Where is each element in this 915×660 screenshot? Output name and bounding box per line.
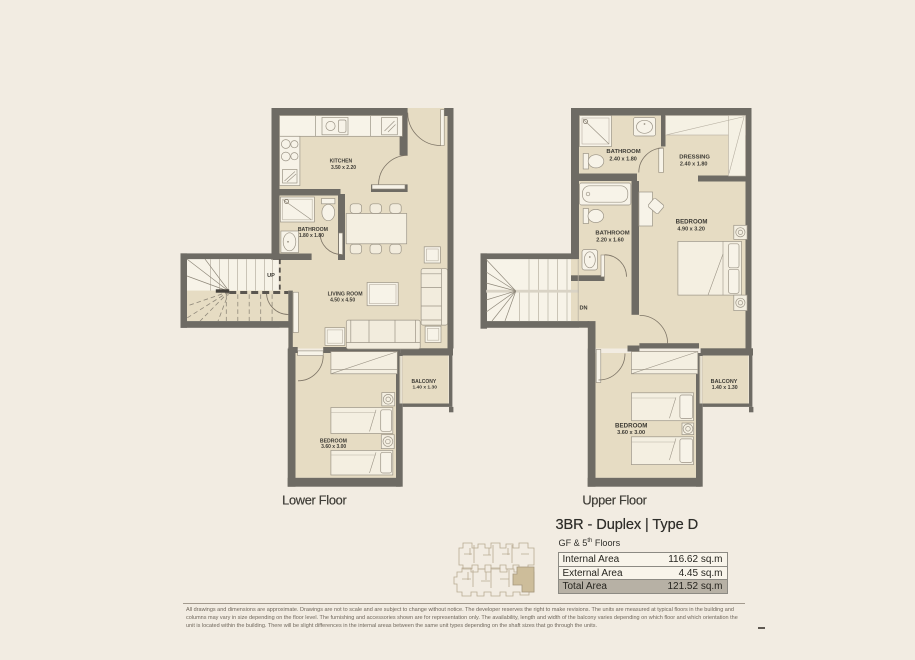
svg-text:BATHROOM: BATHROOM: [606, 149, 640, 155]
svg-text:BALCONY: BALCONY: [412, 379, 437, 385]
svg-text:3.50 x 2.20: 3.50 x 2.20: [331, 165, 356, 171]
svg-text:UP: UP: [267, 273, 275, 279]
svg-text:3.60 x 3.00: 3.60 x 3.00: [617, 430, 645, 436]
svg-text:2.40 x 1.80: 2.40 x 1.80: [680, 161, 708, 167]
svg-text:BATHROOM: BATHROOM: [595, 230, 629, 236]
svg-text:3.60 x 3.00: 3.60 x 3.00: [321, 444, 346, 450]
svg-text:1.40 x 1.30: 1.40 x 1.30: [712, 385, 738, 391]
svg-text:BEDROOM: BEDROOM: [676, 219, 708, 226]
svg-text:1.80 x 1.80: 1.80 x 1.80: [299, 233, 324, 239]
svg-text:1.40 x 1.30: 1.40 x 1.30: [412, 385, 437, 391]
svg-text:DRESSING: DRESSING: [679, 155, 710, 161]
svg-text:KITCHEN: KITCHEN: [330, 159, 353, 165]
svg-text:DN: DN: [579, 306, 587, 312]
svg-text:4.50 x 4.50: 4.50 x 4.50: [330, 297, 355, 303]
svg-text:2.20 x 1.60: 2.20 x 1.60: [596, 238, 624, 244]
svg-text:2.40 x 1.80: 2.40 x 1.80: [609, 157, 637, 163]
svg-text:BEDROOM: BEDROOM: [615, 423, 647, 430]
svg-text:4.90 x 3.20: 4.90 x 3.20: [677, 227, 705, 233]
svg-text:Upper Floor: Upper Floor: [582, 493, 647, 508]
svg-text:Lower Floor: Lower Floor: [282, 493, 347, 508]
